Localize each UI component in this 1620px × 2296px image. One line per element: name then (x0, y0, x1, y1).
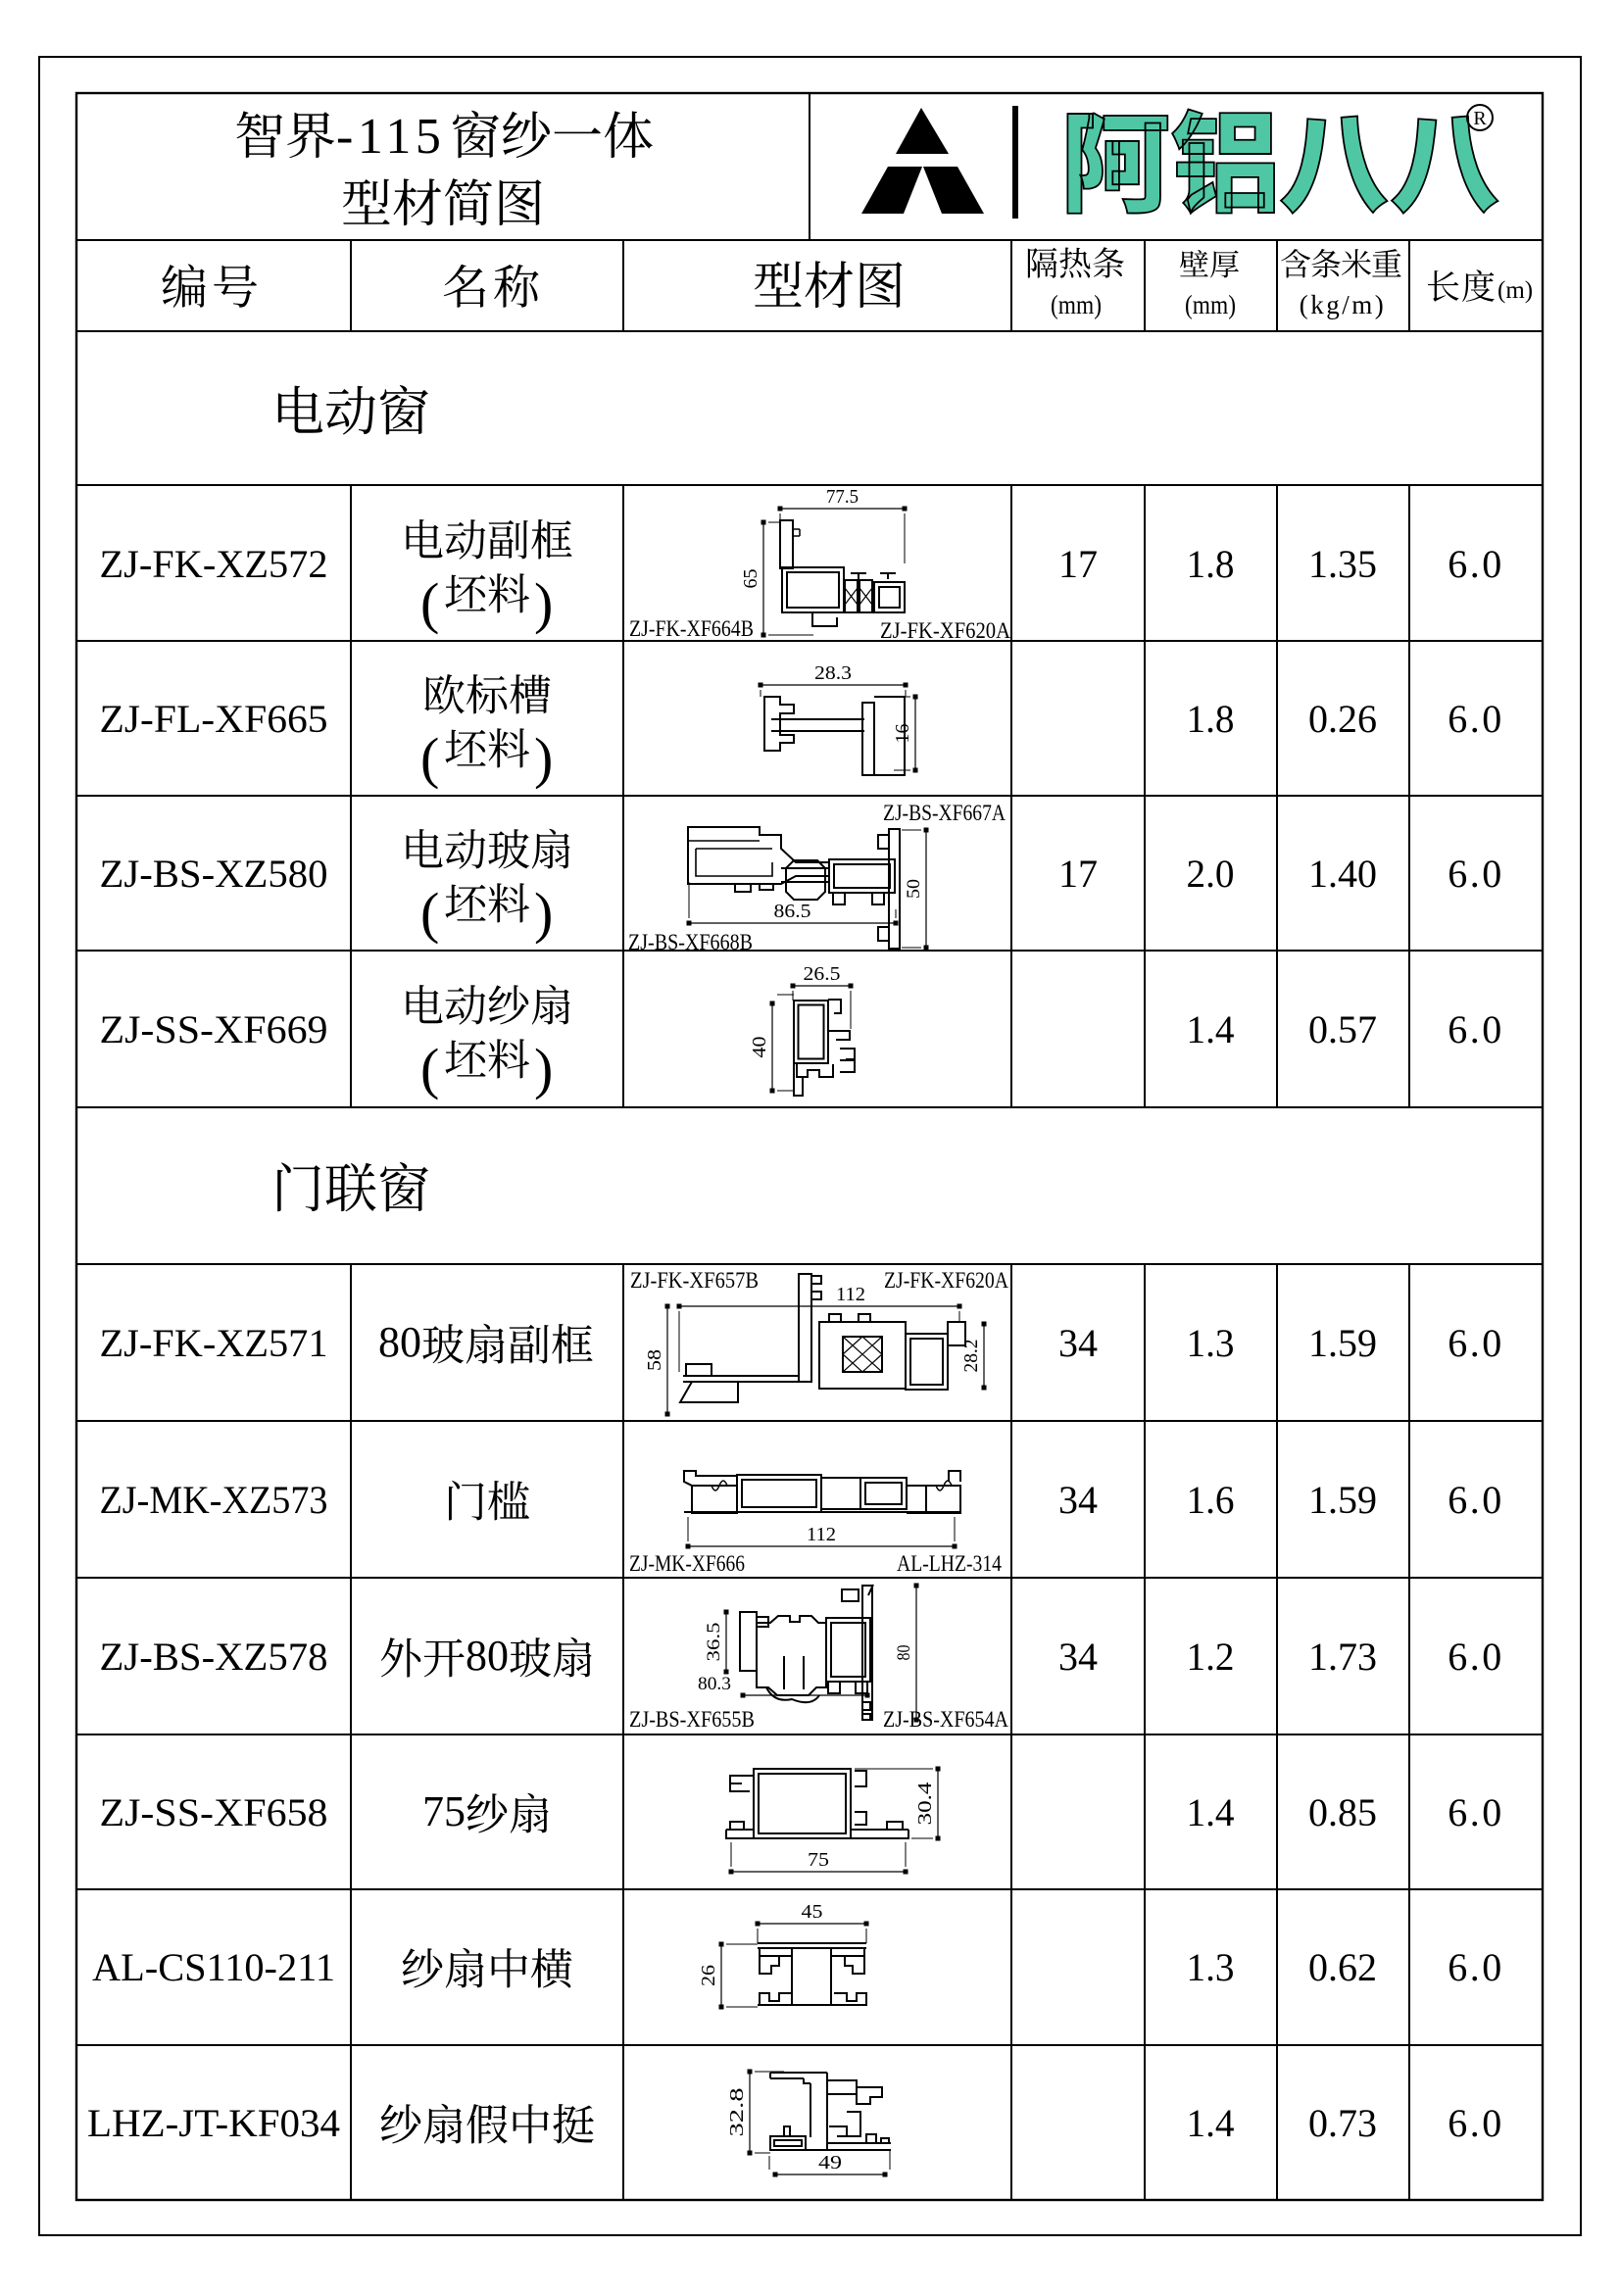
svg-text:6.0: 6.0 (1448, 852, 1504, 896)
svg-text:ZJ-FK-XF620A: ZJ-FK-XF620A (884, 1268, 1008, 1293)
svg-text:75: 75 (422, 1787, 466, 1835)
svg-text:1.59: 1.59 (1308, 1478, 1377, 1522)
svg-text:ZJ-FK-XZ572: ZJ-FK-XZ572 (100, 542, 328, 586)
svg-text:ZJ-BS-XF654A: ZJ-BS-XF654A (883, 1707, 1008, 1732)
svg-text:(: ( (420, 726, 439, 790)
svg-text:1.4: 1.4 (1187, 1790, 1235, 1834)
svg-text:ZJ-BS-XZ580: ZJ-BS-XZ580 (100, 852, 328, 896)
svg-text:34: 34 (1058, 1321, 1098, 1365)
svg-text:58: 58 (644, 1349, 665, 1371)
svg-text:(m): (m) (1497, 277, 1533, 304)
svg-text:ZJ-SS-XF658: ZJ-SS-XF658 (100, 1790, 328, 1834)
svg-text:(: ( (420, 881, 439, 945)
svg-text:0.62: 0.62 (1308, 1945, 1377, 1989)
svg-text:26: 26 (698, 1965, 719, 1986)
svg-text:R: R (1473, 108, 1487, 129)
svg-text:ZJ-FK-XF657B: ZJ-FK-XF657B (630, 1268, 759, 1293)
svg-text:80: 80 (466, 1632, 509, 1680)
svg-text:112: 112 (836, 1284, 865, 1305)
svg-text:-115: -115 (336, 109, 445, 165)
svg-text:80: 80 (378, 1318, 421, 1366)
svg-text:32.8: 32.8 (726, 2088, 748, 2137)
svg-text:ZJ-MK-XZ573: ZJ-MK-XZ573 (100, 1478, 328, 1522)
svg-text:ZJ-BS-XZ578: ZJ-BS-XZ578 (100, 1635, 328, 1679)
svg-text:ZJ-BS-XF667A: ZJ-BS-XF667A (883, 801, 1006, 825)
svg-text:40: 40 (749, 1037, 770, 1058)
svg-text:ZJ-MK-XF666: ZJ-MK-XF666 (629, 1551, 745, 1576)
svg-text:6.0: 6.0 (1448, 1945, 1504, 1989)
svg-text:): ) (534, 571, 553, 635)
svg-text:6.0: 6.0 (1448, 1478, 1504, 1522)
svg-text:16: 16 (892, 724, 913, 744)
svg-text:ZJ-FK-XF664B: ZJ-FK-XF664B (629, 616, 754, 641)
svg-text:6.0: 6.0 (1448, 1007, 1504, 1051)
svg-text:1.3: 1.3 (1187, 1321, 1235, 1365)
svg-text:): ) (534, 1037, 553, 1100)
svg-text:ZJ-FL-XF665: ZJ-FL-XF665 (100, 697, 328, 741)
svg-text:(mm): (mm) (1051, 290, 1102, 319)
svg-text:1.4: 1.4 (1187, 1007, 1235, 1051)
svg-text:28.2: 28.2 (960, 1340, 982, 1373)
svg-text:): ) (534, 726, 553, 790)
svg-text:ZJ-BS-XF655B: ZJ-BS-XF655B (629, 1707, 755, 1732)
svg-text:): ) (534, 881, 553, 945)
svg-text:(kg/m): (kg/m) (1300, 290, 1387, 319)
svg-text:86.5: 86.5 (774, 901, 811, 922)
svg-text:LHZ-JT-KF034: LHZ-JT-KF034 (87, 2101, 340, 2145)
svg-text:AL-LHZ-314: AL-LHZ-314 (897, 1551, 1002, 1576)
svg-text:AL-CS110-211: AL-CS110-211 (92, 1945, 335, 1989)
svg-text:6.0: 6.0 (1448, 2101, 1504, 2145)
svg-text:6.0: 6.0 (1448, 697, 1504, 741)
svg-text:65: 65 (740, 569, 761, 589)
svg-text:28.3: 28.3 (814, 662, 852, 684)
svg-text:6.0: 6.0 (1448, 1790, 1504, 1834)
svg-text:17: 17 (1058, 852, 1098, 896)
svg-text:80.3: 80.3 (698, 1674, 731, 1694)
svg-text:1.6: 1.6 (1187, 1478, 1235, 1522)
svg-text:ZJ-FK-XZ571: ZJ-FK-XZ571 (100, 1321, 328, 1365)
svg-text:75: 75 (808, 1849, 829, 1871)
svg-text:(: ( (420, 571, 439, 635)
svg-text:ZJ-FK-XF620A: ZJ-FK-XF620A (880, 618, 1010, 643)
svg-text:(mm): (mm) (1185, 290, 1236, 319)
svg-text:1.73: 1.73 (1308, 1635, 1377, 1679)
svg-text:6.0: 6.0 (1448, 1321, 1504, 1365)
svg-text:6.0: 6.0 (1448, 542, 1504, 586)
svg-text:0.73: 0.73 (1308, 2101, 1377, 2145)
svg-text:36.5: 36.5 (704, 1623, 724, 1662)
svg-text:ZJ-SS-XF669: ZJ-SS-XF669 (100, 1007, 328, 1051)
svg-text:1.35: 1.35 (1308, 542, 1377, 586)
svg-text:1.8: 1.8 (1187, 697, 1235, 741)
svg-text:34: 34 (1058, 1635, 1098, 1679)
svg-text:1.2: 1.2 (1187, 1635, 1235, 1679)
svg-text:17: 17 (1058, 542, 1098, 586)
svg-text:49: 49 (818, 2152, 842, 2174)
svg-text:ZJ-BS-XF668B: ZJ-BS-XF668B (628, 930, 753, 954)
svg-text:1.8: 1.8 (1187, 542, 1235, 586)
svg-text:80: 80 (894, 1645, 914, 1661)
svg-text:45: 45 (802, 1901, 823, 1923)
svg-text:2.0: 2.0 (1187, 852, 1235, 896)
svg-text:34: 34 (1058, 1478, 1098, 1522)
svg-text:0.57: 0.57 (1308, 1007, 1377, 1051)
svg-text:1.40: 1.40 (1308, 852, 1377, 896)
svg-text:30.4: 30.4 (914, 1783, 936, 1826)
svg-text:(: ( (420, 1037, 439, 1100)
svg-text:26.5: 26.5 (804, 963, 841, 985)
svg-text:0.85: 0.85 (1308, 1790, 1377, 1834)
svg-text:1.4: 1.4 (1187, 2101, 1235, 2145)
svg-text:6.0: 6.0 (1448, 1635, 1504, 1679)
svg-text:1.3: 1.3 (1187, 1945, 1235, 1989)
svg-text:1.59: 1.59 (1308, 1321, 1377, 1365)
svg-text:112: 112 (807, 1524, 836, 1545)
svg-text:0.26: 0.26 (1308, 697, 1377, 741)
svg-text:50: 50 (904, 879, 924, 899)
svg-text:77.5: 77.5 (826, 486, 859, 508)
